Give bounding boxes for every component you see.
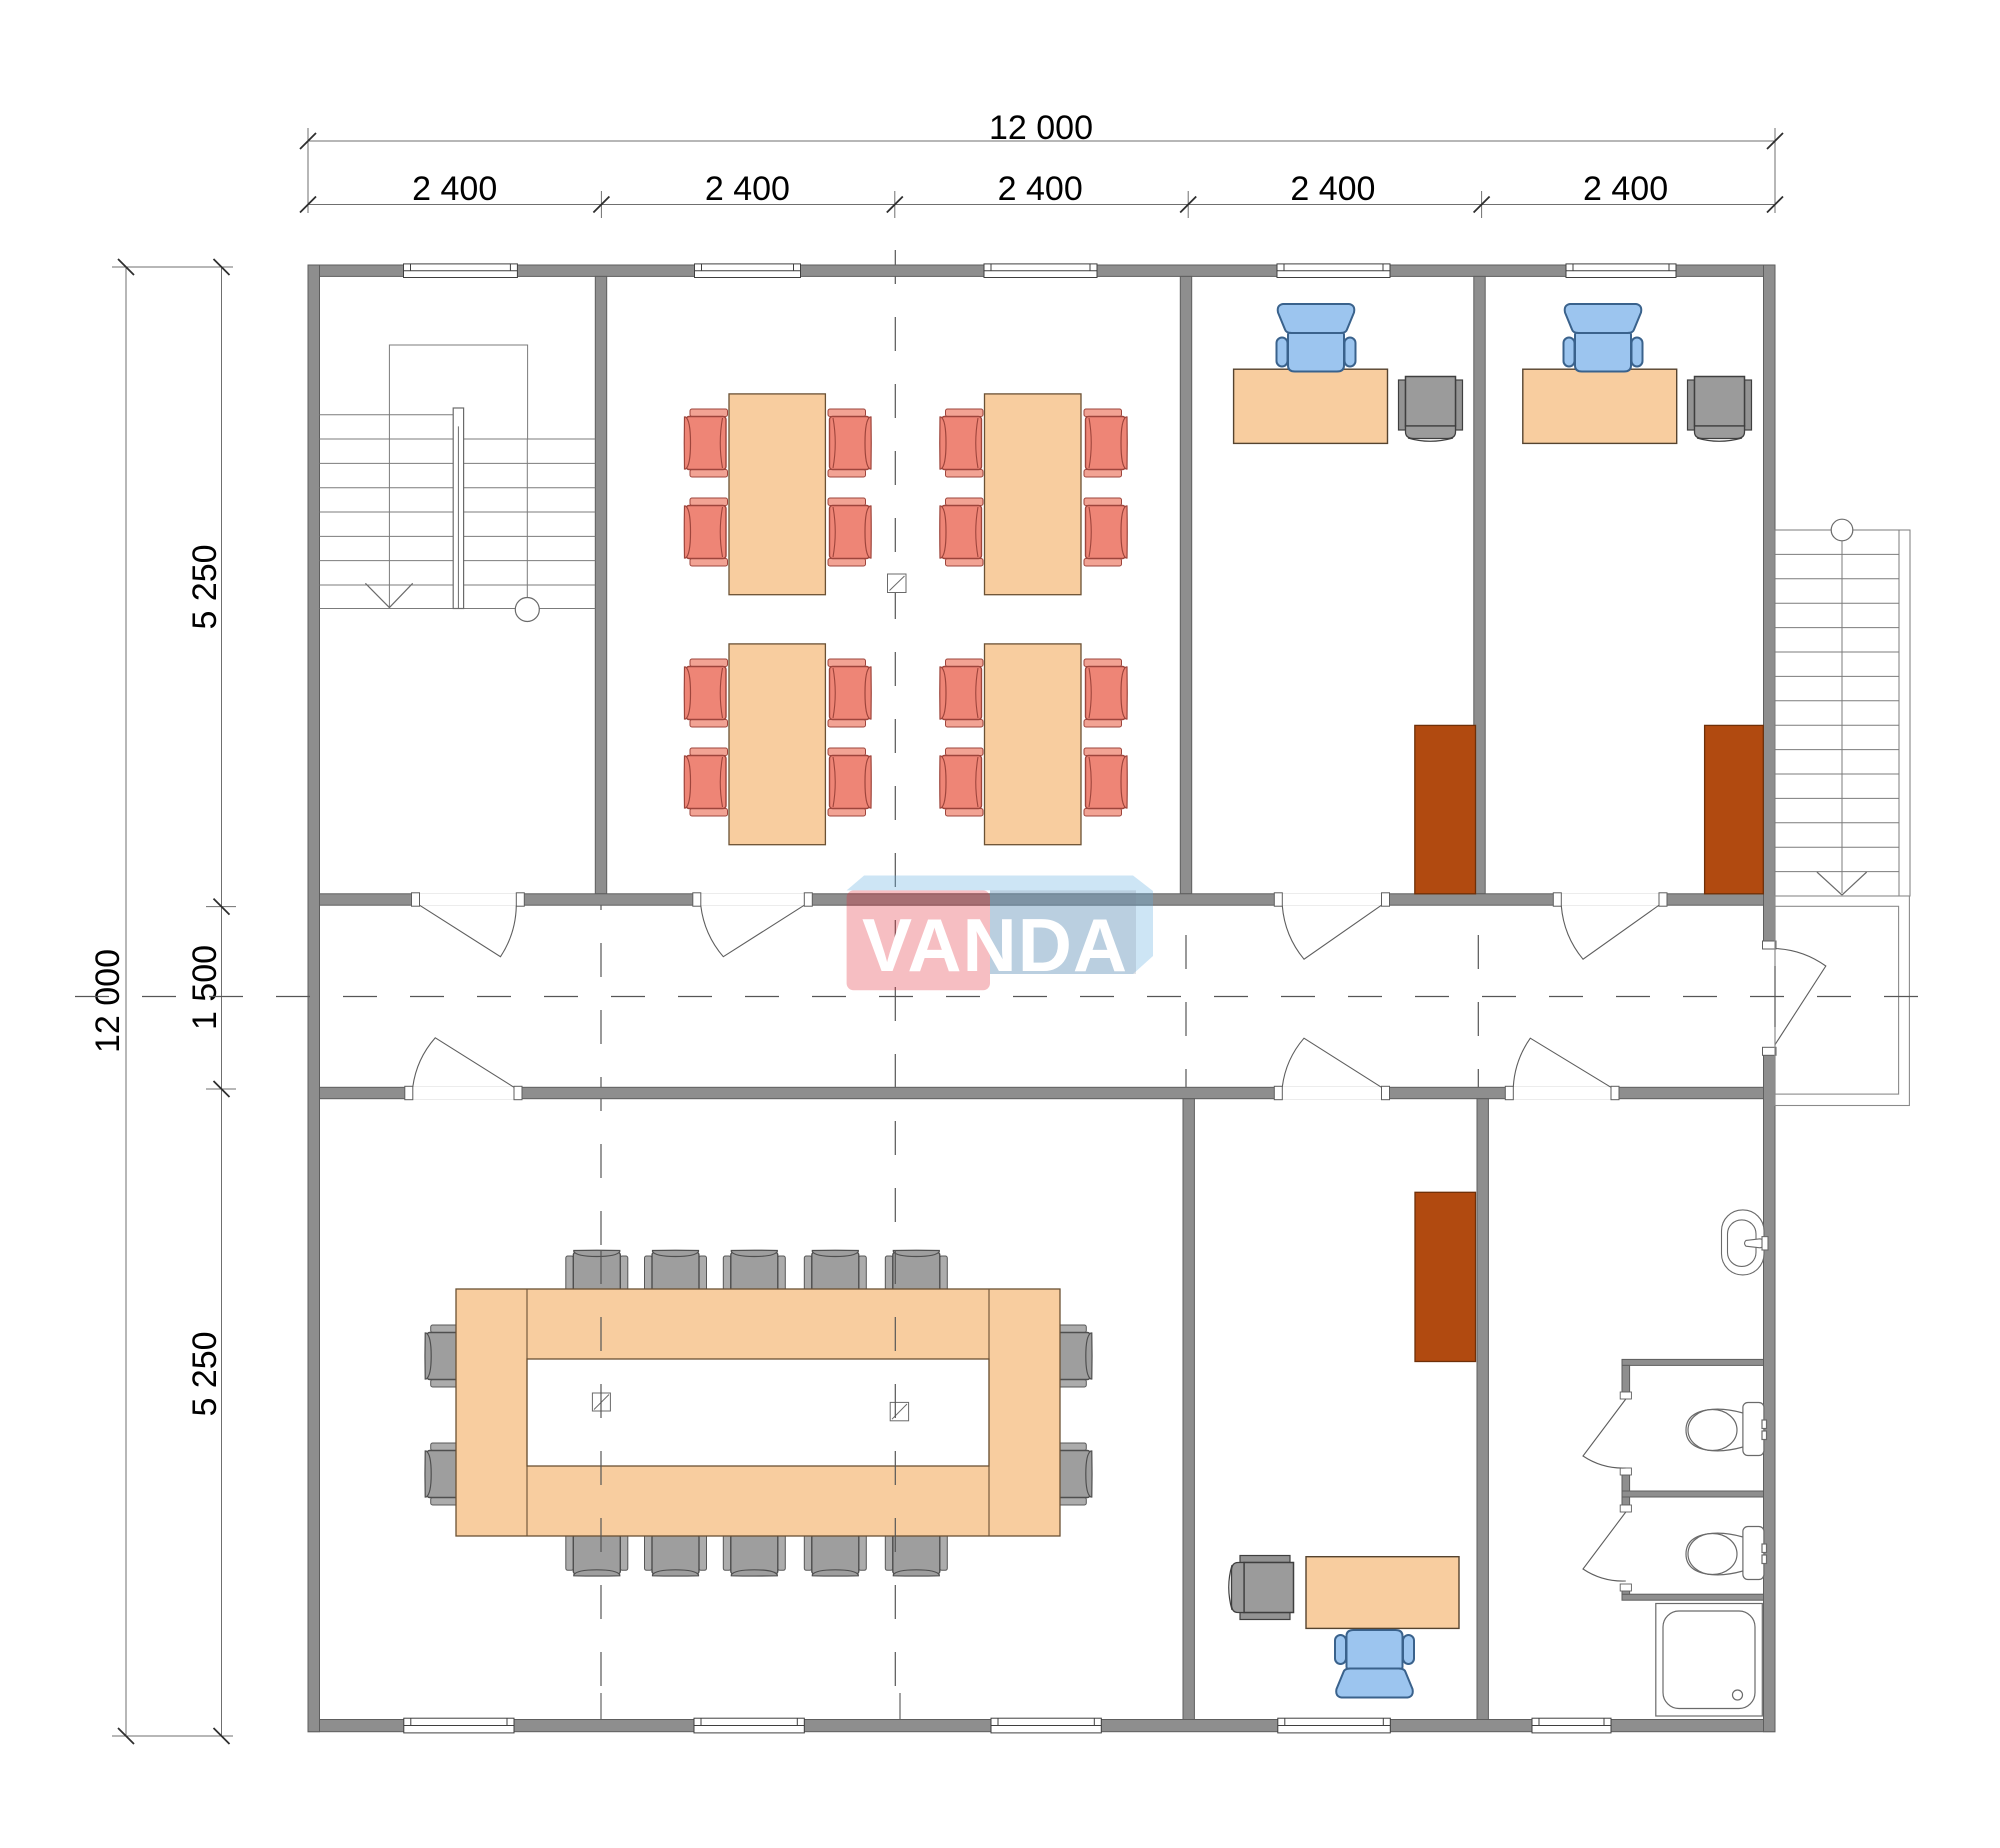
svg-text:12 000: 12 000 <box>89 949 127 1053</box>
svg-text:5 250: 5 250 <box>186 544 224 629</box>
svg-text:2 400: 2 400 <box>998 170 1083 208</box>
svg-text:2 400: 2 400 <box>1583 170 1668 208</box>
svg-text:2 400: 2 400 <box>1290 170 1375 208</box>
svg-text:2 400: 2 400 <box>412 170 497 208</box>
svg-text:1 500: 1 500 <box>186 945 224 1030</box>
svg-text:2 400: 2 400 <box>705 170 790 208</box>
svg-text:5 250: 5 250 <box>186 1331 224 1416</box>
svg-text:12 000: 12 000 <box>989 109 1093 147</box>
svg-text:VANDA: VANDA <box>862 903 1128 987</box>
